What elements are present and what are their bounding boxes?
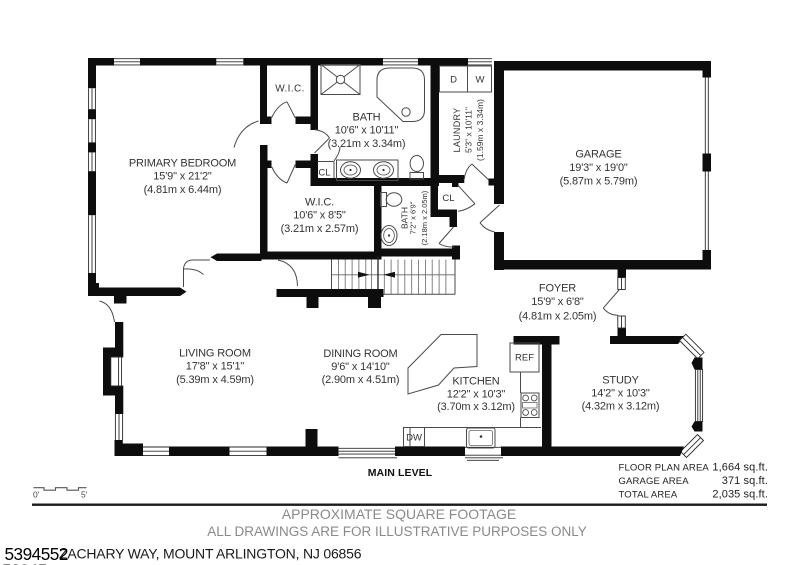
svg-text:TOTAL AREA: TOTAL AREA <box>619 490 678 501</box>
svg-text:(5.87m x 5.79m): (5.87m x 5.79m) <box>560 176 638 188</box>
svg-text:10'6" x 8'5": 10'6" x 8'5" <box>293 210 346 222</box>
svg-text:15'9" x 6'8": 15'9" x 6'8" <box>531 296 584 308</box>
svg-text:GARAGE AREA: GARAGE AREA <box>619 476 690 487</box>
svg-text:15'9" x 21'2": 15'9" x 21'2" <box>153 171 212 183</box>
svg-text:(1.59m x 3.34m): (1.59m x 3.34m) <box>475 99 485 161</box>
svg-text:0': 0' <box>33 490 40 500</box>
svg-text:ZACHARY WAY, MOUNT ARLINGTON,: ZACHARY WAY, MOUNT ARLINGTON, NJ 06856 <box>59 546 362 562</box>
svg-text:W.I.C.: W.I.C. <box>275 84 305 95</box>
svg-text:REF: REF <box>515 353 534 364</box>
svg-text:KITCHEN: KITCHEN <box>452 376 499 388</box>
svg-text:(3.21m x 3.34m): (3.21m x 3.34m) <box>328 138 406 150</box>
svg-text:LAUNDRY: LAUNDRY <box>452 108 462 153</box>
svg-text:371 sq.ft.: 371 sq.ft. <box>722 475 768 487</box>
svg-text:10'6" x 10'11": 10'6" x 10'11" <box>335 125 399 137</box>
svg-text:W.I.C.: W.I.C. <box>305 197 334 209</box>
svg-text:MAIN LEVEL: MAIN LEVEL <box>368 467 433 479</box>
svg-text:GARAGE: GARAGE <box>575 149 621 161</box>
svg-text:DW: DW <box>406 433 422 444</box>
svg-text:APPROXIMATE SQUARE FOOTAGE: APPROXIMATE SQUARE FOOTAGE <box>282 506 516 522</box>
svg-text:LIVING ROOM: LIVING ROOM <box>179 348 251 360</box>
svg-text:D: D <box>450 75 457 86</box>
svg-text:PRIMARY BEDROOM: PRIMARY BEDROOM <box>129 158 236 170</box>
svg-text:(2.90m x 4.51m): (2.90m x 4.51m) <box>322 374 400 386</box>
svg-text:5'3" x 10'11": 5'3" x 10'11" <box>464 107 474 153</box>
svg-text:1,664 sq.ft.: 1,664 sq.ft. <box>712 462 768 474</box>
svg-text:(5.39m x 4.59m): (5.39m x 4.59m) <box>176 374 254 386</box>
svg-text:(3.70m x 3.12m): (3.70m x 3.12m) <box>437 401 515 413</box>
svg-text:(3.21m x 2.57m): (3.21m x 2.57m) <box>281 223 359 235</box>
svg-text:FLOOR PLAN AREA: FLOOR PLAN AREA <box>619 463 710 474</box>
svg-text:2,035 sq.ft.: 2,035 sq.ft. <box>712 489 768 501</box>
svg-text:(4.81m x 6.44m): (4.81m x 6.44m) <box>144 184 222 196</box>
svg-text:W: W <box>476 75 485 86</box>
svg-text:ALL DRAWINGS ARE FOR ILLUSTRAT: ALL DRAWINGS ARE FOR ILLUSTRATIVE PURPOS… <box>207 524 587 539</box>
svg-text:5': 5' <box>81 490 88 500</box>
svg-text:12'2" x 10'3": 12'2" x 10'3" <box>447 389 506 401</box>
svg-text:CL: CL <box>318 168 330 179</box>
svg-text:19'3" x 19'0": 19'3" x 19'0" <box>569 162 628 174</box>
svg-text:17'8" x 15'1": 17'8" x 15'1" <box>186 361 245 373</box>
svg-text:9'6" x 14'10": 9'6" x 14'10" <box>331 361 390 373</box>
svg-text:DINING ROOM: DINING ROOM <box>323 348 397 360</box>
svg-text:FOYER: FOYER <box>539 283 576 295</box>
svg-text:14'2" x 10'3": 14'2" x 10'3" <box>591 388 650 400</box>
svg-text:7'2" x 6'9": 7'2" x 6'9" <box>409 201 418 234</box>
svg-text:(4.81m x 2.05m): (4.81m x 2.05m) <box>519 311 597 323</box>
svg-text:53945: 53945 <box>2 561 47 565</box>
svg-text:(2.18m x 2.05m): (2.18m x 2.05m) <box>420 190 429 245</box>
svg-text:BATH: BATH <box>353 112 381 124</box>
svg-text:STUDY: STUDY <box>602 375 639 387</box>
svg-text:CL: CL <box>442 193 454 204</box>
svg-text:(4.32m x 3.12m): (4.32m x 3.12m) <box>582 401 660 413</box>
